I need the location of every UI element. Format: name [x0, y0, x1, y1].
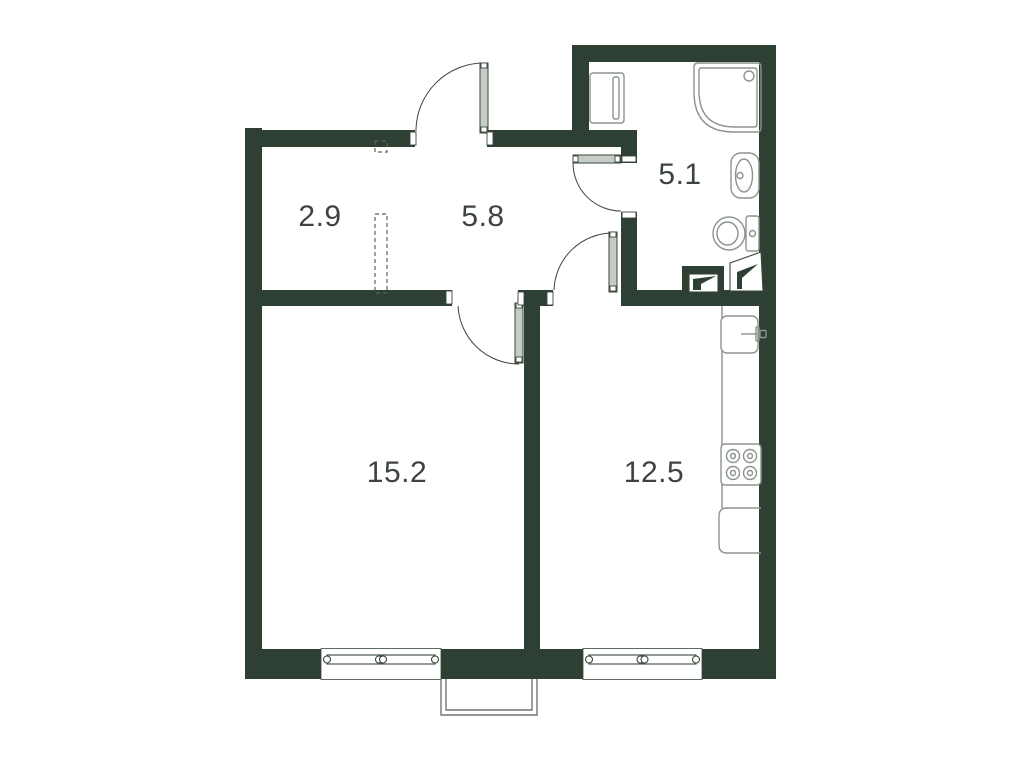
- wall-segment: [245, 128, 262, 679]
- balcony: [441, 679, 537, 715]
- wall-segment: [441, 649, 583, 679]
- wall-segment: [572, 45, 776, 62]
- ventilation-shaft-icon: [730, 252, 763, 291]
- bathroom-door: [573, 155, 636, 218]
- room-area-hallway: 5.8: [461, 200, 504, 233]
- wall-segment: [245, 649, 321, 679]
- washing-machine: [590, 73, 624, 123]
- door-leaf: [609, 232, 617, 292]
- wall-segment: [702, 649, 776, 679]
- door-leaf: [480, 63, 488, 133]
- wall-segment: [572, 45, 589, 133]
- toilet: [713, 216, 759, 251]
- door-leaf: [515, 303, 523, 363]
- dashed-partition: [375, 141, 387, 293]
- room-area-entry: 2.9: [298, 200, 341, 233]
- window: [583, 649, 702, 680]
- wall-segment: [487, 130, 637, 147]
- cooktop-icon: [721, 444, 761, 485]
- wall-segment: [621, 212, 637, 306]
- wall-segment: [759, 45, 776, 679]
- room-area-living-room: 15.2: [367, 456, 427, 489]
- window: [321, 649, 441, 680]
- kitchen-door: [547, 232, 617, 305]
- room-area-bathroom: 5.1: [658, 158, 701, 191]
- room-labels: 2.9 5.8 5.1 15.2 12.5: [298, 158, 701, 489]
- wall-segment: [524, 290, 540, 679]
- kitchen-appliance: [719, 508, 761, 553]
- wall-segment: [245, 130, 415, 147]
- ventilation-shaft-icon: [689, 274, 718, 292]
- washbasin: [731, 153, 759, 198]
- walls: [245, 45, 776, 679]
- entry-door: [410, 63, 493, 145]
- living-room-door: [446, 291, 524, 364]
- floor-plan: 2.9 5.8 5.1 15.2 12.5: [0, 0, 1024, 768]
- wall-segment: [245, 290, 452, 306]
- room-area-kitchen: 12.5: [624, 456, 684, 489]
- door-leaf: [573, 155, 621, 163]
- shower: [694, 63, 761, 132]
